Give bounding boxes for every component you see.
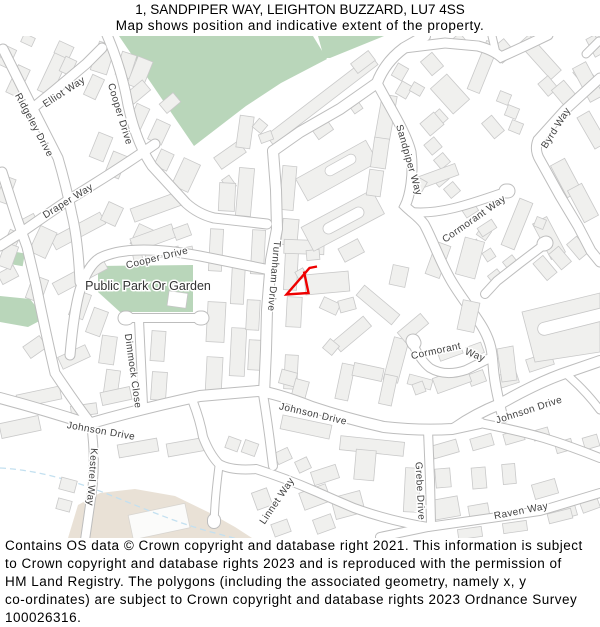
svg-text:Public Park Or Garden: Public Park Or Garden	[85, 279, 211, 293]
